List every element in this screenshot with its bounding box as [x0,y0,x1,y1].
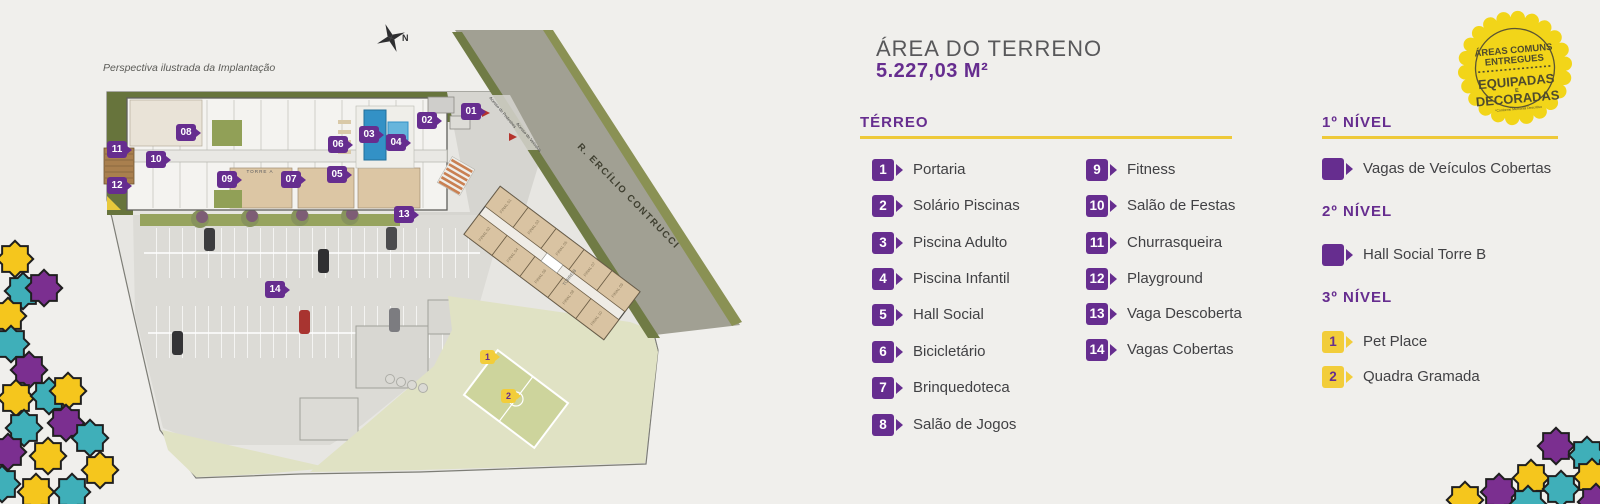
legend-item: 14Vagas Cobertas [1086,338,1233,361]
section-terreo-heading: TÉRREO [860,114,929,131]
legend-item: 13Vaga Descoberta [1086,302,1242,325]
legend-label: Churrasqueira [1127,234,1222,251]
plan-marker-05: 05 [327,166,347,183]
star-icon [30,438,66,474]
legend-label: Fitness [1127,161,1175,178]
plan-marker-08: 08 [176,124,196,141]
section-nivel2-heading: 2º NÍVEL [1322,203,1392,220]
legend-item: 1Portaria [872,158,966,181]
star-icon [26,270,62,306]
legend-badge: 10 [1086,195,1108,217]
legend-badge: 5 [872,304,894,326]
legend-badge: 2 [872,195,894,217]
legend-badge: 8 [872,414,894,436]
badge-seal: ÁREAS COMUNS ENTREGUES EQUIPADAS E DECOR… [1453,7,1577,130]
star-icon [1481,474,1517,504]
page-title: ÁREA DO TERRENO [876,36,1102,62]
legend-item: 4Piscina Infantil [872,267,1010,290]
legend-badge: 13 [1086,303,1108,325]
legend-badge: 3 [872,232,894,254]
legend-badge: 1 [1322,331,1344,353]
plan-marker-07: 07 [281,171,301,188]
legend-item: 1Pet Place [1322,330,1427,353]
legend-label: Hall Social [913,306,984,323]
plan-marker-y2: 2 [501,389,516,403]
plan-marker-y1: 1 [480,350,495,364]
legend-label: Piscina Infantil [913,270,1010,287]
compass-n-label: N [402,33,409,43]
legend-item: Vagas de Veículos Cobertas [1322,157,1551,180]
legend-item: 8Salão de Jogos [872,413,1016,436]
plan-marker-04: 04 [386,134,406,151]
legend-badge: 9 [1086,159,1108,181]
plan-marker-03: 03 [359,126,379,143]
star-icon [82,452,118,488]
legend-item: 6Bicicletário [872,340,986,363]
nivel1-underline [1322,136,1558,139]
plan-marker-09: 09 [217,171,237,188]
plan-marker-13: 13 [394,206,414,223]
star-icon [1538,428,1574,464]
legend-label: Hall Social Torre B [1363,246,1486,263]
section-nivel1-heading: 1º NÍVEL [1322,114,1392,131]
legend-label: Brinquedoteca [913,379,1010,396]
legend-label: Salão de Festas [1127,197,1235,214]
legend-label: Quadra Gramada [1363,368,1480,385]
star-mosaic-left [0,241,118,504]
brochure-implantacao: R. ERCÍLIO CONTRUCCI TORRE A [0,0,1600,504]
legend-item: 2Quadra Gramada [1322,365,1480,388]
star-icon [18,474,54,504]
plan-marker-02: 02 [417,112,437,129]
terreo-underline [860,136,1232,139]
legend-item: 11Churrasqueira [1086,231,1222,254]
legend-item: 5Hall Social [872,303,984,326]
star-icon [72,420,108,456]
legend-item: 3Piscina Adulto [872,231,1007,254]
section-nivel3-heading: 3º NÍVEL [1322,289,1392,306]
plan-marker-01: 01 [461,103,481,120]
legend-badge: 12 [1086,268,1108,290]
star-icon [0,241,33,277]
legend-badge: 4 [872,268,894,290]
star-icon [0,380,34,416]
legend-label: Playground [1127,270,1203,287]
legend-badge: 1 [872,159,894,181]
legend-item: 7Brinquedoteca [872,376,1010,399]
star-mosaic-right [1447,428,1600,504]
plan-marker-14: 14 [265,281,285,298]
star-icon [0,466,20,502]
legend-label: Portaria [913,161,966,178]
plan-marker-12: 12 [107,177,127,194]
legend-label: Piscina Adulto [913,234,1007,251]
plan-caption: Perspectiva ilustrada da Implantação [103,62,275,74]
legend-label: Pet Place [1363,333,1427,350]
legend-item: 12Playground [1086,267,1203,290]
legend-label: Salão de Jogos [913,416,1016,433]
legend-item: 9Fitness [1086,158,1175,181]
legend-badge: 6 [872,341,894,363]
legend-label: Bicicletário [913,343,986,360]
torre-a-label: TORRE A [246,169,273,174]
legend-label: Vaga Descoberta [1127,305,1242,322]
plan-marker-11: 11 [107,141,127,158]
legend-badge [1322,158,1344,180]
legend-badge: 11 [1086,232,1108,254]
legend-badge [1322,244,1344,266]
legend-badge: 2 [1322,366,1344,388]
plan-marker-10: 10 [146,151,166,168]
legend-item: 2Solário Piscinas [872,194,1020,217]
star-icon [54,474,90,504]
legend-label: Solário Piscinas [913,197,1020,214]
legend-badge: 14 [1086,339,1108,361]
star-icon [1447,482,1483,504]
legend-item: 10Salão de Festas [1086,194,1235,217]
legend-label: Vagas de Veículos Cobertas [1363,160,1551,177]
plan-marker-06: 06 [328,136,348,153]
legend-label: Vagas Cobertas [1127,341,1233,358]
legend-item: Hall Social Torre B [1322,243,1486,266]
star-icon [50,373,86,409]
terrain-area-value: 5.227,03 M² [876,60,988,83]
legend-badge: 7 [872,377,894,399]
